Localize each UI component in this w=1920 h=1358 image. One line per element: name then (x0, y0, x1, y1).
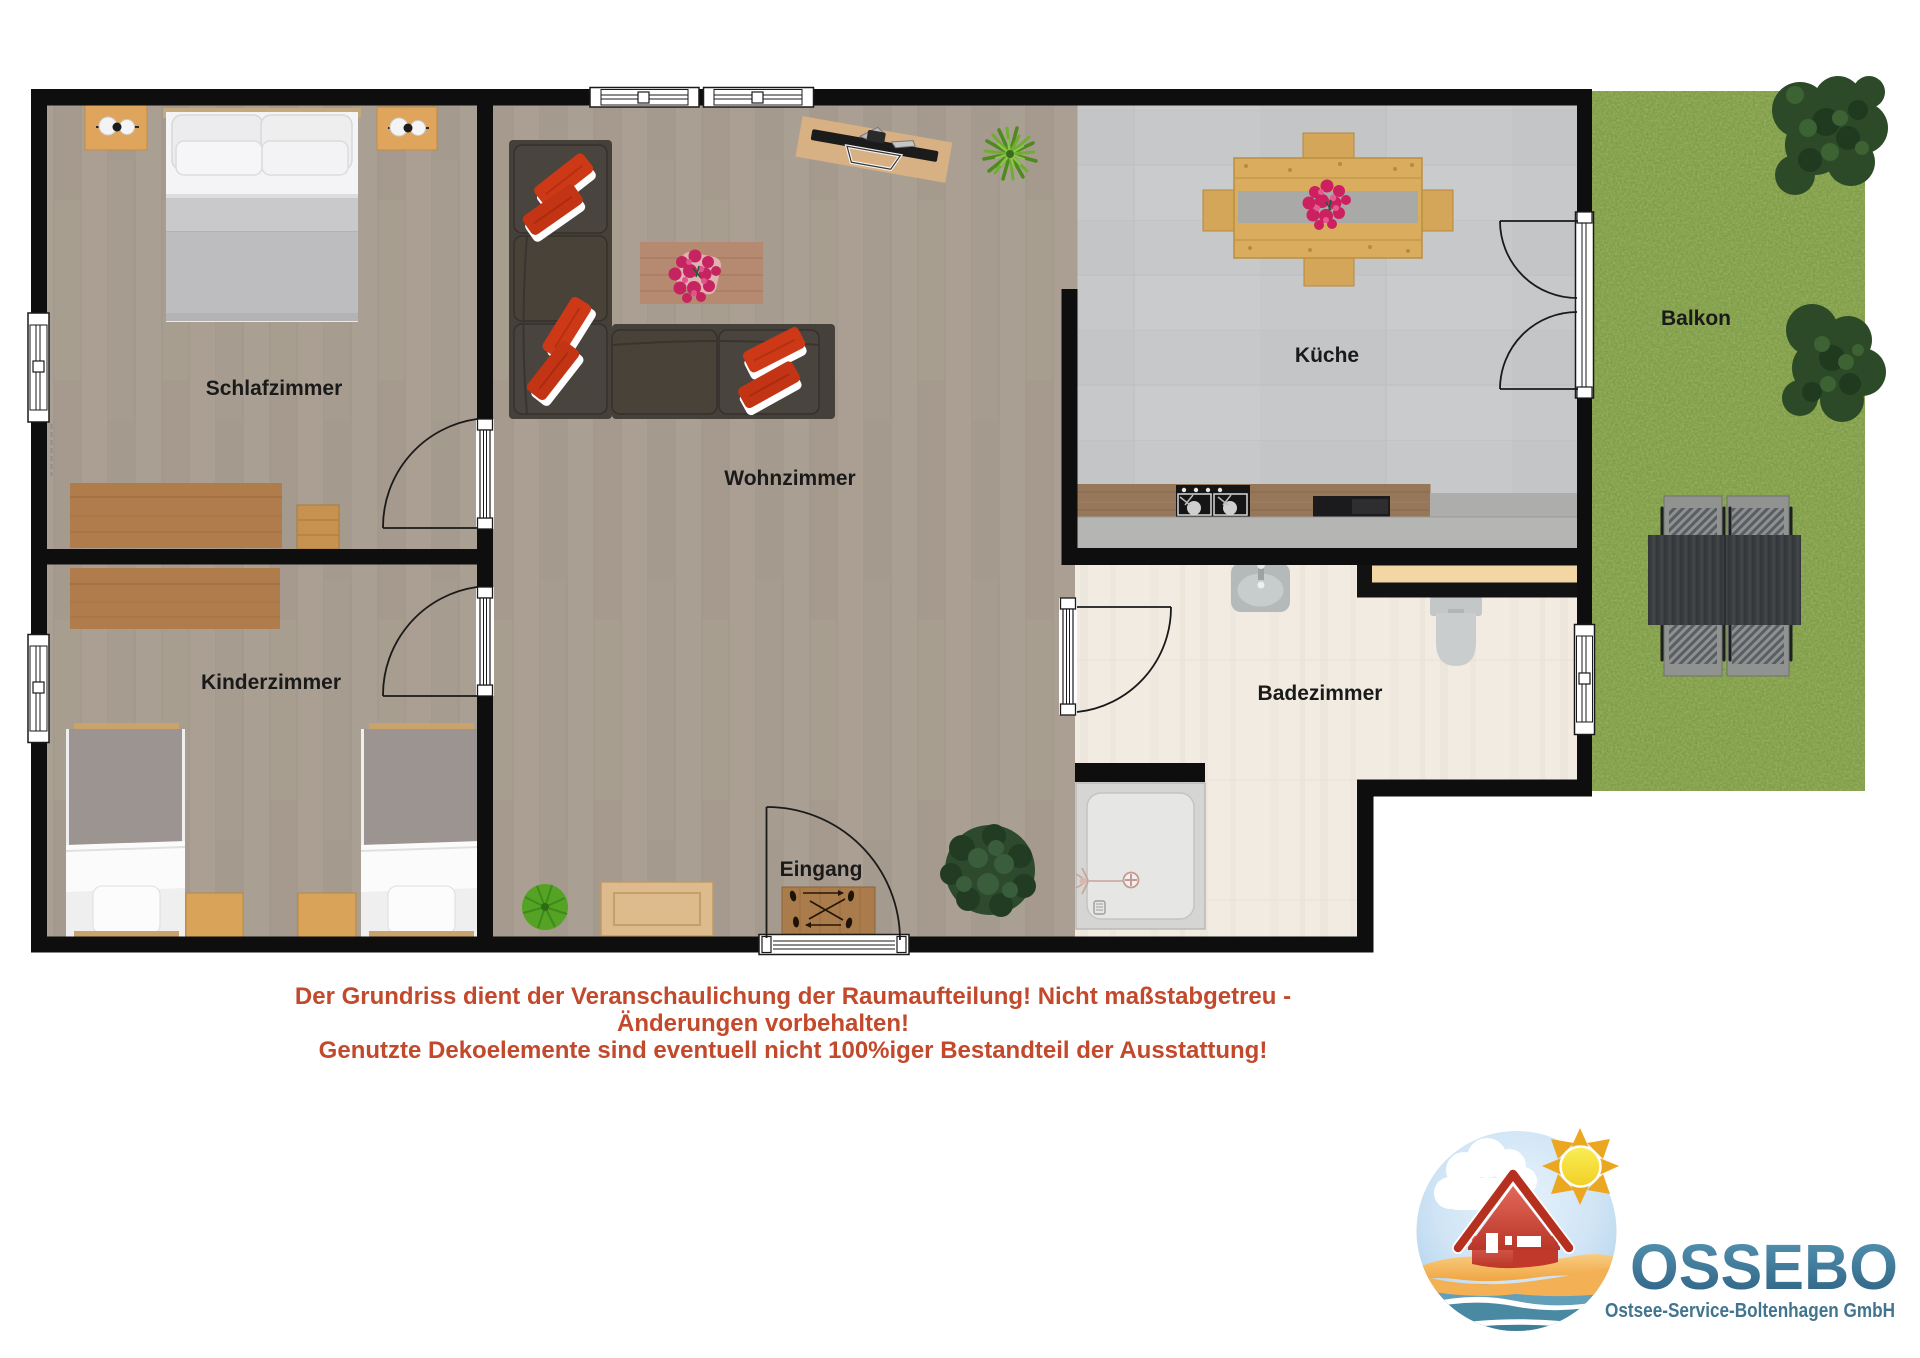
svg-text:Ostsee-Service-Boltenhagen Gmb: Ostsee-Service-Boltenhagen GmbH (1605, 1300, 1895, 1322)
svg-text:Kinderzimmer: Kinderzimmer (201, 671, 341, 694)
svg-text:OSSEBO: OSSEBO (1630, 1231, 1898, 1303)
svg-text:Badezimmer: Badezimmer (1258, 682, 1383, 705)
svg-text:Wohnzimmer: Wohnzimmer (724, 467, 855, 490)
svg-text:Genutzte Dekoelemente sind eve: Genutzte Dekoelemente sind eventuell nic… (319, 1037, 1268, 1064)
svg-text:Eingang: Eingang (780, 858, 863, 881)
svg-text:Der Grundriss dient der Verans: Der Grundriss dient der Veranschaulichun… (295, 983, 1291, 1010)
svg-text:Küche: Küche (1295, 344, 1359, 367)
svg-text:Änderungen vorbehalten!: Änderungen vorbehalten! (617, 1010, 909, 1037)
svg-text:Schlafzimmer: Schlafzimmer (206, 377, 343, 400)
svg-text:Balkon: Balkon (1661, 307, 1731, 330)
